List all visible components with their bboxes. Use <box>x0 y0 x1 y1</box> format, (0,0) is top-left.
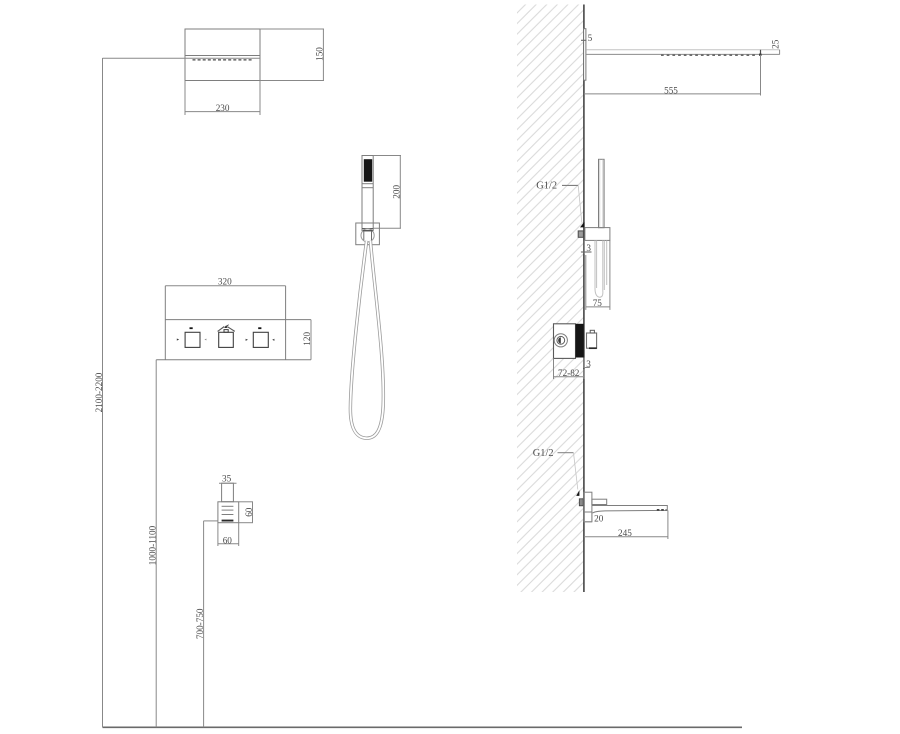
svg-text:35: 35 <box>222 473 232 483</box>
svg-text:2100-2200: 2100-2200 <box>94 372 104 412</box>
svg-text:72-82: 72-82 <box>558 368 580 378</box>
svg-text:700-750: 700-750 <box>195 608 205 639</box>
svg-text:3: 3 <box>586 243 591 253</box>
svg-text:75: 75 <box>593 298 603 308</box>
svg-text:25: 25 <box>771 39 781 49</box>
svg-text:1000-1100: 1000-1100 <box>148 525 158 565</box>
svg-text:150: 150 <box>315 47 325 61</box>
svg-text:555: 555 <box>664 85 678 95</box>
svg-text:60: 60 <box>223 535 233 545</box>
svg-text:G1/2: G1/2 <box>533 448 554 459</box>
svg-text:G1/2: G1/2 <box>536 181 557 192</box>
svg-text:60: 60 <box>244 507 254 517</box>
svg-text:3: 3 <box>586 359 591 369</box>
svg-text:200: 200 <box>392 185 402 199</box>
svg-text:120: 120 <box>302 332 312 346</box>
svg-text:320: 320 <box>218 277 232 287</box>
svg-text:20: 20 <box>594 513 604 523</box>
svg-text:5: 5 <box>588 33 593 43</box>
svg-text:230: 230 <box>216 103 230 113</box>
svg-text:245: 245 <box>618 528 632 538</box>
